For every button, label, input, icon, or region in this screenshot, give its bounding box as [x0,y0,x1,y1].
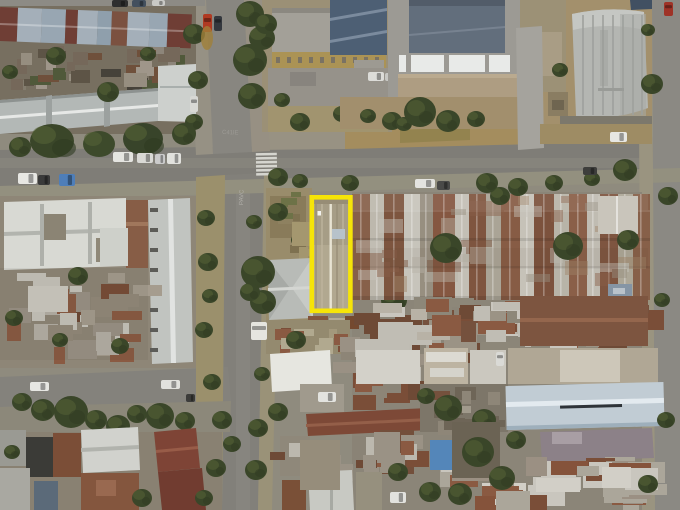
svg-text:C41lE: C41lE [222,130,239,137]
svg-text:PAVC: PAVC [239,189,246,205]
